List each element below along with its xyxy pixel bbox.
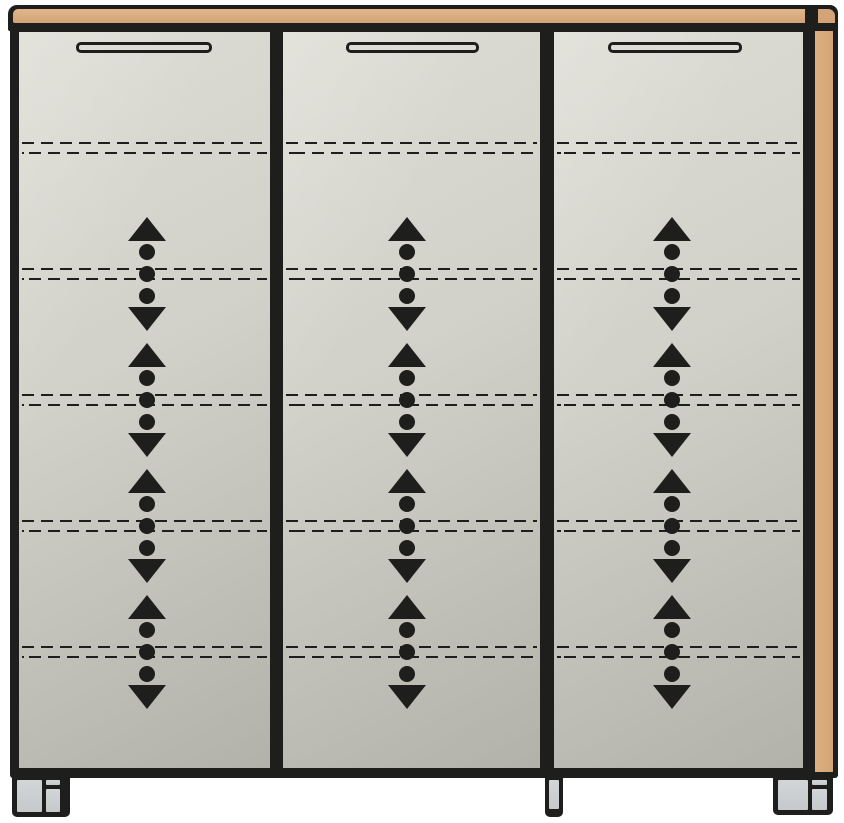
shelf-pin-hole-icon xyxy=(399,288,415,304)
shelf-adjust-arrow-down-icon xyxy=(653,559,691,583)
shelf-pin-hole-icon xyxy=(139,244,155,260)
shelf-pin-hole-icon xyxy=(139,414,155,430)
shelf-pin-hole-icon xyxy=(139,496,155,512)
foot-face xyxy=(812,789,827,810)
shelf-hidden-line xyxy=(286,152,537,154)
shelf-pin-hole-icon xyxy=(399,392,415,408)
foot-face xyxy=(46,789,60,812)
shelf-pin-hole-icon xyxy=(664,370,680,386)
shelf-adjust-arrow-up-icon xyxy=(653,217,691,241)
shelf-pin-hole-icon xyxy=(664,666,680,682)
shelf-hidden-line xyxy=(557,142,800,144)
shelf-pin-hole-icon xyxy=(139,288,155,304)
door-panel-middle xyxy=(283,32,540,768)
shelf-adjust-arrow-up-icon xyxy=(388,595,426,619)
shelf-pin-hole-icon xyxy=(664,288,680,304)
shelf-adjust-arrow-up-icon xyxy=(128,469,166,493)
shelf-adjust-arrow-up-icon xyxy=(128,343,166,367)
foot-center xyxy=(545,777,563,817)
shelf-hidden-line xyxy=(286,142,537,144)
top-panel-wood-edge xyxy=(13,9,805,23)
shelf-pin-hole-icon xyxy=(399,496,415,512)
cabinet-top-panel xyxy=(8,5,838,31)
foot-left xyxy=(12,773,70,817)
shelf-adjust-arrow-up-icon xyxy=(388,343,426,367)
cabinet-technical-drawing xyxy=(0,0,844,823)
shelf-pin-hole-icon xyxy=(664,414,680,430)
right-side-wood-edge xyxy=(815,28,833,772)
shelf-pin-hole-icon xyxy=(139,266,155,282)
foot-face xyxy=(17,780,42,812)
door-handle-left xyxy=(76,42,212,53)
shelf-pin-hole-icon xyxy=(139,540,155,556)
shelf-adjust-arrow-up-icon xyxy=(388,217,426,241)
shelf-adjust-arrow-down-icon xyxy=(653,433,691,457)
shelf-pin-hole-icon xyxy=(139,518,155,534)
shelf-adjust-arrow-up-icon xyxy=(653,343,691,367)
shelf-pin-hole-icon xyxy=(139,644,155,660)
foot-face xyxy=(812,780,827,785)
cabinet-right-side-panel xyxy=(812,28,838,776)
shelf-adjust-arrow-up-icon xyxy=(388,469,426,493)
shelf-pin-hole-icon xyxy=(399,622,415,638)
shelf-pin-hole-icon xyxy=(664,622,680,638)
shelf-adjust-arrow-up-icon xyxy=(653,595,691,619)
shelf-pin-hole-icon xyxy=(664,540,680,556)
shelf-pin-hole-icon xyxy=(664,518,680,534)
top-panel-right-end-cap xyxy=(818,9,835,23)
shelf-pin-hole-icon xyxy=(139,370,155,386)
foot-right xyxy=(773,775,833,815)
shelf-adjust-arrow-down-icon xyxy=(388,685,426,709)
shelf-pin-hole-icon xyxy=(139,666,155,682)
shelf-adjust-arrow-down-icon xyxy=(388,559,426,583)
shelf-adjust-arrow-up-icon xyxy=(653,469,691,493)
door-handle-right xyxy=(608,42,742,53)
door-panel-right xyxy=(554,32,803,768)
door-handle-middle xyxy=(346,42,479,53)
door-panel-left xyxy=(19,32,270,768)
shelf-pin-hole-icon xyxy=(399,540,415,556)
shelf-pin-hole-icon xyxy=(399,370,415,386)
shelf-adjust-arrow-down-icon xyxy=(388,433,426,457)
shelf-pin-hole-icon xyxy=(664,496,680,512)
foot-face xyxy=(46,780,60,785)
shelf-hidden-line xyxy=(557,152,800,154)
foot-face xyxy=(549,780,559,809)
shelf-adjust-arrow-up-icon xyxy=(128,595,166,619)
shelf-pin-hole-icon xyxy=(399,644,415,660)
shelf-pin-hole-icon xyxy=(399,414,415,430)
shelf-adjust-arrow-down-icon xyxy=(128,433,166,457)
shelf-adjust-arrow-down-icon xyxy=(653,307,691,331)
shelf-pin-hole-icon xyxy=(664,392,680,408)
shelf-pin-hole-icon xyxy=(399,266,415,282)
shelf-hidden-line xyxy=(22,142,267,144)
shelf-adjust-arrow-down-icon xyxy=(128,559,166,583)
shelf-pin-hole-icon xyxy=(139,622,155,638)
shelf-adjust-arrow-up-icon xyxy=(128,217,166,241)
shelf-adjust-arrow-down-icon xyxy=(653,685,691,709)
shelf-adjust-arrow-down-icon xyxy=(128,685,166,709)
shelf-pin-hole-icon xyxy=(399,666,415,682)
shelf-adjust-arrow-down-icon xyxy=(128,307,166,331)
shelf-pin-hole-icon xyxy=(664,266,680,282)
shelf-pin-hole-icon xyxy=(664,244,680,260)
shelf-pin-hole-icon xyxy=(139,392,155,408)
shelf-pin-hole-icon xyxy=(399,518,415,534)
shelf-adjust-arrow-down-icon xyxy=(388,307,426,331)
foot-face xyxy=(778,780,808,810)
shelf-pin-hole-icon xyxy=(664,644,680,660)
shelf-hidden-line xyxy=(22,152,267,154)
shelf-pin-hole-icon xyxy=(399,244,415,260)
